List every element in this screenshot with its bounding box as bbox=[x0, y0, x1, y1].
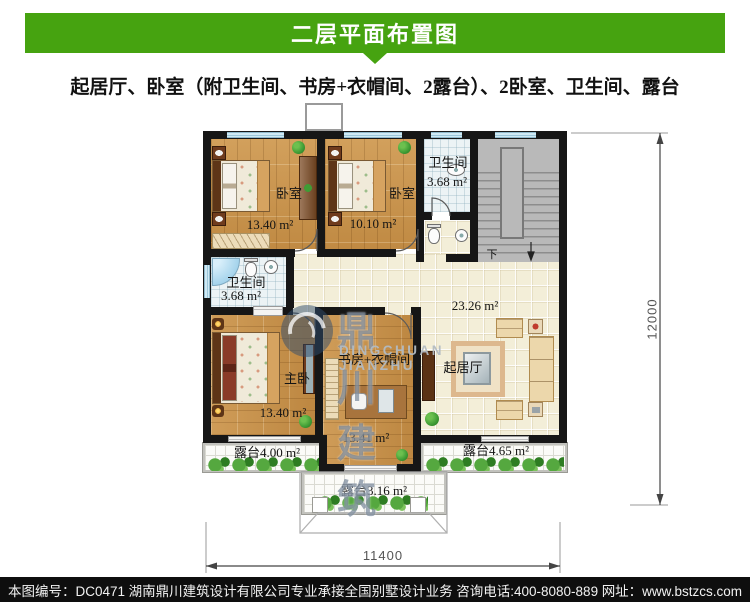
wall-bedroom-divider bbox=[317, 139, 325, 257]
dimension-height: 12000 bbox=[645, 298, 660, 339]
wall-hall-south-2 bbox=[283, 307, 293, 315]
bed-foot bbox=[257, 161, 269, 211]
label-terrace-right: 露台4.65 m² bbox=[463, 440, 529, 459]
wall-bedrooms-bottom-3 bbox=[418, 249, 424, 257]
wall-hall-south-1 bbox=[203, 307, 253, 315]
dimension-width: 11400 bbox=[363, 548, 403, 563]
bed-foot bbox=[373, 161, 385, 211]
plant-icon bbox=[425, 412, 439, 426]
area-bedroom2: 10.10 m² bbox=[350, 216, 397, 232]
footer-bar: 本图编号：DC0471 湖南鼎川建筑设计有限公司专业承接全国别墅设计业务 咨询电… bbox=[0, 577, 750, 602]
bed-bedroom2 bbox=[328, 160, 386, 212]
door-study-terrace bbox=[344, 465, 397, 471]
tv-cabinet-living bbox=[422, 351, 435, 401]
plant-icon bbox=[292, 141, 305, 154]
bed-blanket bbox=[354, 162, 373, 210]
wall-bath-left-right bbox=[286, 257, 294, 308]
window-bath-top bbox=[431, 132, 462, 138]
terrace-post-left bbox=[312, 497, 328, 513]
bed-pillows bbox=[222, 335, 237, 401]
window-bath-left bbox=[204, 265, 210, 298]
bed-blanket bbox=[238, 162, 257, 210]
side-table-flower bbox=[528, 319, 543, 334]
armchair bbox=[496, 318, 523, 338]
armchair bbox=[496, 400, 523, 420]
terrace-post-right bbox=[410, 497, 426, 513]
desk-chair bbox=[351, 393, 367, 410]
label-study: 书房+衣帽间 bbox=[338, 349, 410, 368]
bed-blanket bbox=[238, 334, 267, 402]
stairwell-void bbox=[500, 147, 524, 239]
bed-headboard bbox=[213, 161, 221, 211]
wall-study-bottom-1 bbox=[319, 464, 344, 472]
area-bath-left: 3.68 m² bbox=[221, 288, 261, 304]
label-living: 起居厅 bbox=[443, 357, 482, 376]
area-master: 13.40 m² bbox=[260, 405, 307, 421]
window-bedroom1 bbox=[227, 132, 284, 138]
wall-right bbox=[559, 131, 567, 443]
title-pointer-triangle bbox=[363, 53, 387, 64]
wall-bedroom2-right bbox=[416, 139, 424, 262]
label-stair-down: 下 bbox=[487, 246, 498, 262]
bed-headboard bbox=[213, 333, 221, 403]
bed-bedroom1 bbox=[212, 160, 270, 212]
chimney-outline bbox=[305, 103, 343, 131]
nightstand bbox=[212, 146, 226, 160]
label-bedroom1: 卧室 bbox=[276, 183, 302, 202]
wall-hall-south-4 bbox=[411, 307, 421, 315]
label-terrace-bottom: 露台3.16 m² bbox=[341, 480, 407, 499]
bed-headboard bbox=[329, 161, 337, 211]
area-bath-top: 3.68 m² bbox=[427, 174, 467, 190]
computer-monitor bbox=[378, 389, 394, 413]
nightstand bbox=[212, 212, 226, 226]
wall-lamp bbox=[212, 405, 224, 417]
page: 二层平面布置图 起居厅、卧室（附卫生间、书房+衣帽间、2露台）、2卧室、卫生间、… bbox=[0, 0, 750, 602]
area-hall: 23.26 m² bbox=[452, 298, 499, 314]
wall-bath-stair bbox=[470, 139, 478, 262]
title-bar: 二层平面布置图 bbox=[25, 13, 725, 53]
basin-vestibule bbox=[455, 229, 468, 242]
wall-hall-south-3 bbox=[315, 307, 385, 315]
wall-study-bottom-2 bbox=[397, 464, 421, 472]
sink-bath-left bbox=[264, 260, 278, 274]
label-bedroom2: 卧室 bbox=[389, 183, 415, 202]
window-stair bbox=[495, 132, 536, 138]
wall-bath-top-bottom-1 bbox=[424, 212, 432, 220]
drawing-number: 本图编号：DC0471 bbox=[8, 580, 125, 600]
door-bath-left bbox=[253, 306, 283, 316]
dresser-bedroom1 bbox=[212, 233, 270, 249]
wall-master-study bbox=[315, 315, 323, 435]
side-table bbox=[528, 402, 543, 417]
bed-pillows bbox=[222, 163, 237, 209]
area-bedroom1: 13.40 m² bbox=[247, 217, 294, 233]
area-study: 13.41 m² bbox=[343, 430, 390, 446]
plant-icon bbox=[396, 449, 408, 461]
wall-bath-top-bottom-2 bbox=[450, 212, 470, 220]
label-bath-top: 卫生间 bbox=[428, 152, 467, 171]
bed-pillows bbox=[338, 163, 353, 209]
wall-bedrooms-bottom-1 bbox=[211, 249, 295, 257]
sofa bbox=[529, 336, 554, 402]
bed-master bbox=[212, 332, 280, 404]
wall-bedrooms-bottom-2 bbox=[317, 249, 396, 257]
label-master: 主卧 bbox=[284, 368, 310, 387]
nightstand bbox=[328, 146, 342, 160]
label-terrace-left: 露台4.00 m² bbox=[234, 442, 300, 461]
phone-number: 咨询电话:400-8080-889 bbox=[456, 580, 598, 600]
wall-vestibule-stub bbox=[446, 254, 478, 262]
wall-study-right bbox=[413, 315, 421, 472]
plant-icon bbox=[398, 141, 411, 154]
toilet bbox=[428, 228, 440, 244]
window-bedroom2 bbox=[344, 132, 402, 138]
wall-lamp bbox=[212, 318, 224, 330]
page-title: 二层平面布置图 bbox=[291, 17, 459, 49]
bed-foot bbox=[267, 333, 279, 403]
company-name: 湖南鼎川建筑设计有限公司专业承接全国别墅设计业务 bbox=[129, 580, 453, 600]
nightstand bbox=[328, 212, 342, 226]
website: 网址：www.bstzcs.com bbox=[602, 580, 742, 600]
plan-subtitle: 起居厅、卧室（附卫生间、书房+衣帽间、2露台）、2卧室、卫生间、露台 bbox=[0, 72, 750, 99]
